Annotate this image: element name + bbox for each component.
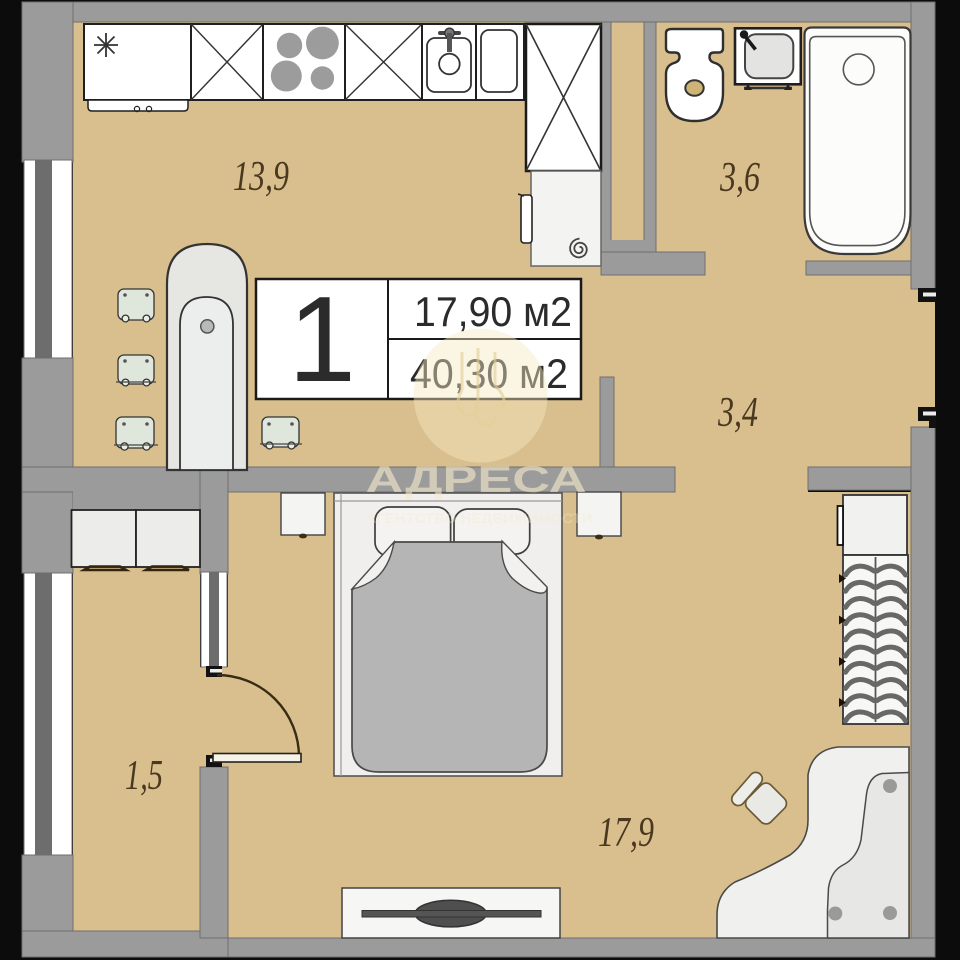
svg-text:3,6: 3,6 [719,155,760,201]
svg-text:3,4: 3,4 [717,390,758,436]
svg-text:АДРЕСА: АДРЕСА [366,459,587,500]
svg-text:17,9: 17,9 [598,810,654,856]
svg-text:1,5: 1,5 [125,753,163,799]
svg-text:1: 1 [288,271,356,407]
svg-text:АГЕНТСТВО НЕДВИЖИМОСТИ: АГЕНТСТВО НЕДВИЖИМОСТИ [366,511,593,526]
svg-text:13,9: 13,9 [233,154,289,200]
svg-text:17,90 м2: 17,90 м2 [414,288,572,335]
